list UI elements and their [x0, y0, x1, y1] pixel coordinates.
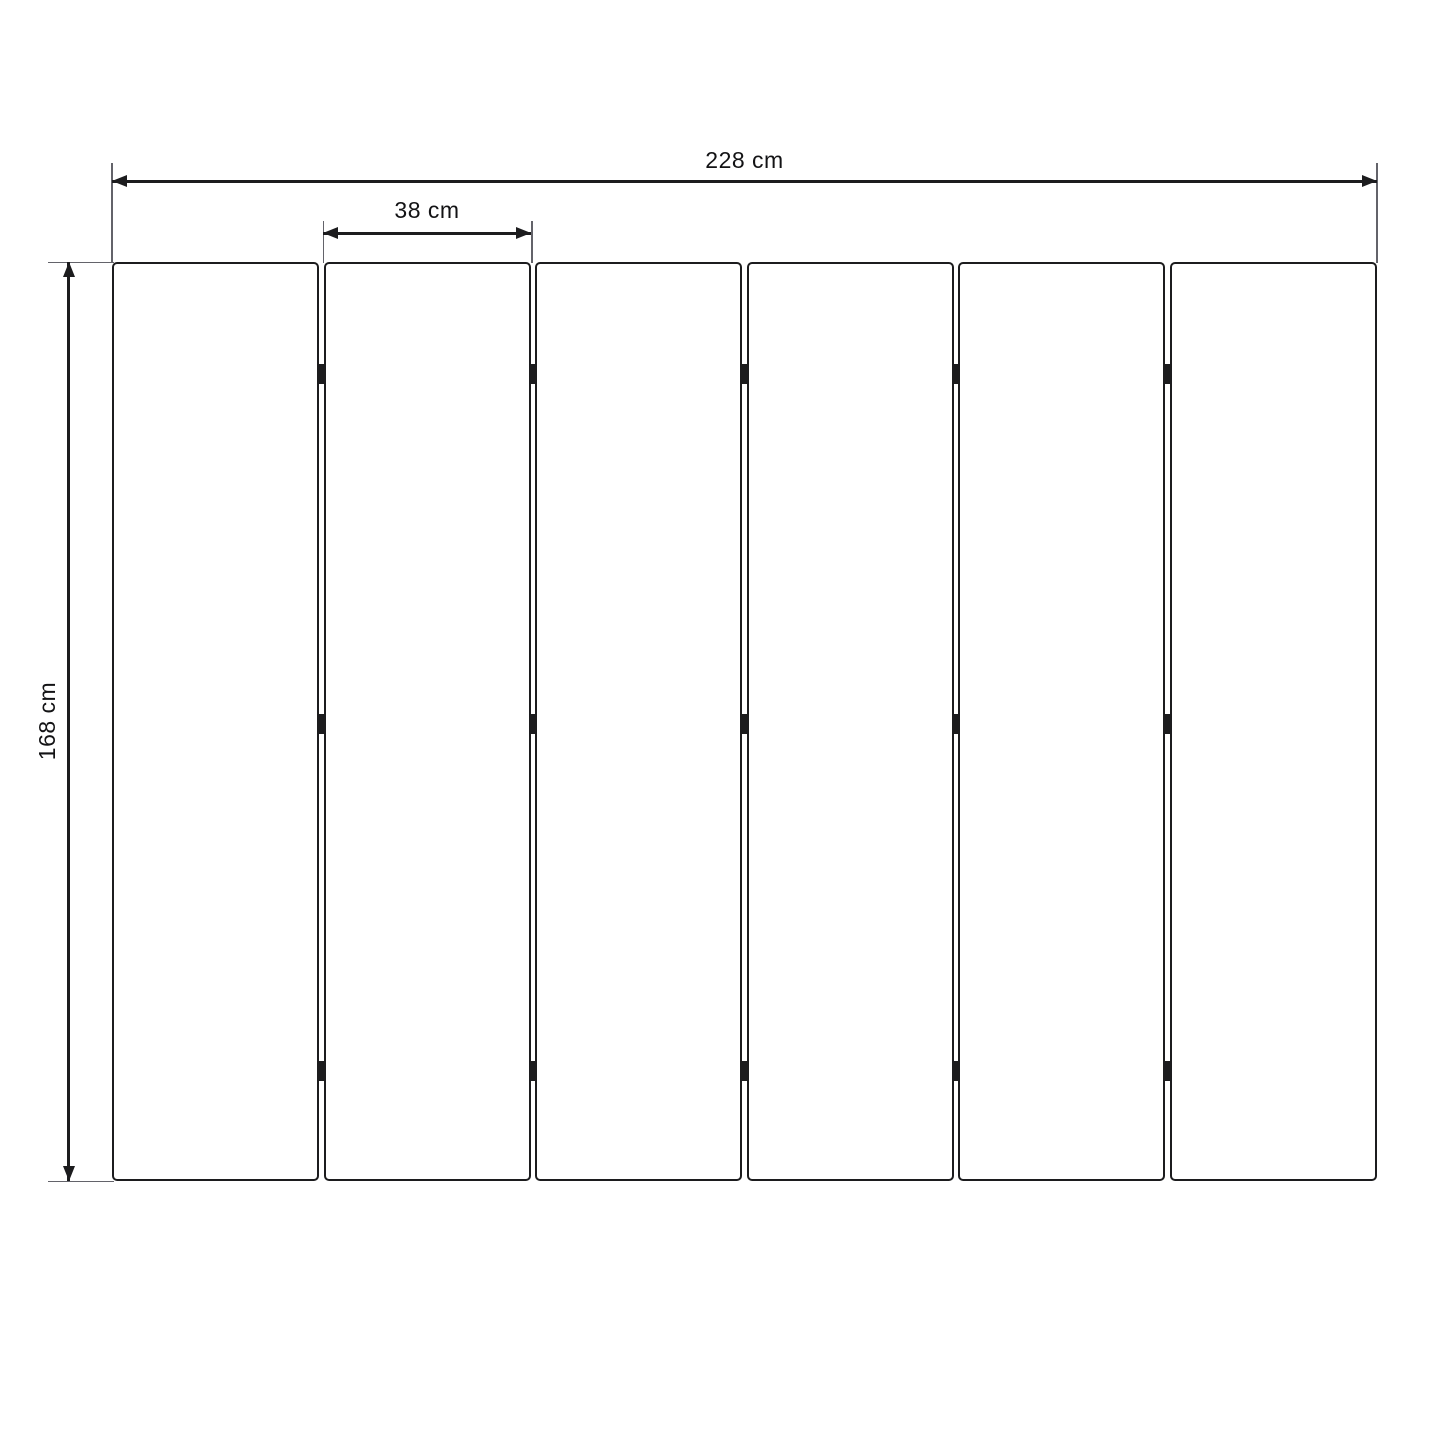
- hinge-connector: [529, 1061, 536, 1081]
- extension-line-panel-width-right: [531, 221, 533, 263]
- hinge-connector: [741, 714, 748, 734]
- hinge-connector: [1164, 1061, 1171, 1081]
- panel-width-label: 38 cm: [323, 196, 531, 224]
- total-width-label: 228 cm: [112, 146, 1377, 174]
- hinge-connector: [1164, 714, 1171, 734]
- panel-5: [958, 262, 1165, 1181]
- hinge-connector: [529, 364, 536, 384]
- hinge-connector: [953, 1061, 960, 1081]
- height-dimension-line: [67, 262, 70, 1181]
- extension-line-height-bottom: [48, 1181, 114, 1183]
- hinge-connector: [953, 364, 960, 384]
- arrowhead-right-icon: [1362, 175, 1377, 187]
- arrowhead-down-icon: [63, 1166, 75, 1181]
- panel-width-dimension-line: [323, 232, 531, 235]
- hinge-connector: [529, 714, 536, 734]
- hinge-connector: [741, 1061, 748, 1081]
- hinge-connector: [318, 364, 325, 384]
- diagram-canvas: 228 cm 38 cm 168 cm: [0, 0, 1445, 1445]
- total-width-dimension-line: [112, 180, 1377, 183]
- hinge-connector: [741, 364, 748, 384]
- hinge-connector: [1164, 364, 1171, 384]
- height-label: 168 cm: [33, 628, 61, 814]
- panel-2: [324, 262, 531, 1181]
- arrowhead-right-icon: [516, 227, 531, 239]
- panel-3: [535, 262, 742, 1181]
- arrowhead-up-icon: [63, 262, 75, 277]
- hinge-connector: [318, 714, 325, 734]
- panel-6: [1170, 262, 1377, 1181]
- arrowhead-left-icon: [112, 175, 127, 187]
- extension-line-height-top: [48, 262, 114, 264]
- panel-1: [112, 262, 319, 1181]
- hinge-connector: [953, 714, 960, 734]
- arrowhead-left-icon: [323, 227, 338, 239]
- hinge-connector: [318, 1061, 325, 1081]
- panel-4: [747, 262, 954, 1181]
